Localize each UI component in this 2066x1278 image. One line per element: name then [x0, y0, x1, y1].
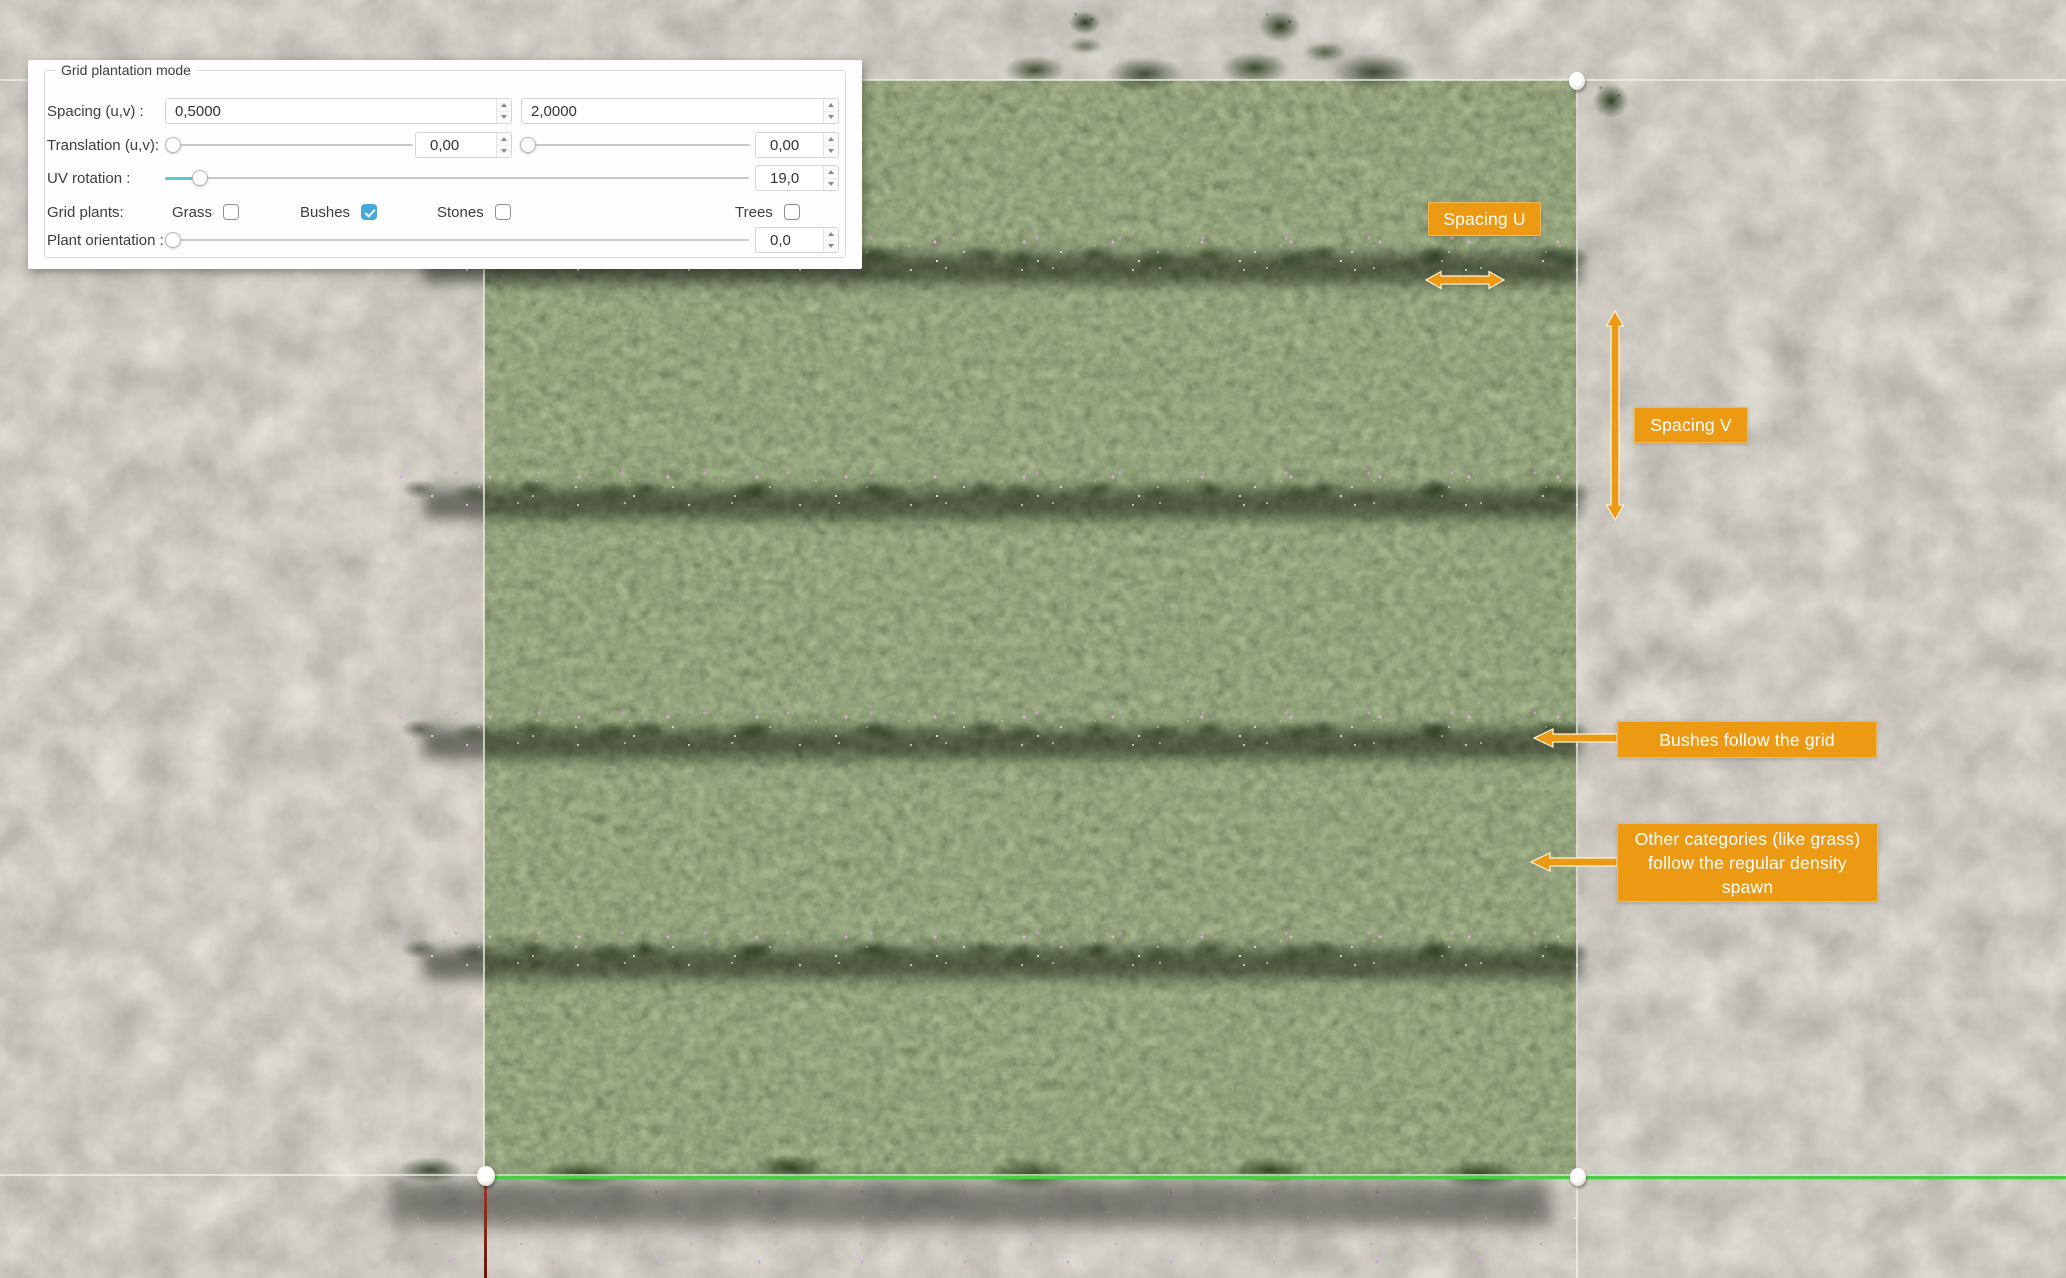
grid-plants-label: Grid plants: — [47, 199, 124, 225]
spinner-up-icon[interactable] — [824, 228, 838, 241]
selection-handle-bottom-right[interactable] — [1570, 1168, 1586, 1186]
spacing-u-group — [165, 98, 512, 124]
spinner-down-icon[interactable] — [824, 241, 838, 253]
bush-row — [389, 703, 1592, 757]
annotation-text: Spacing U — [1443, 207, 1526, 231]
spacing-u-spinner — [496, 99, 511, 123]
translation-u-slider[interactable] — [165, 132, 413, 158]
spinner-up-icon[interactable] — [497, 133, 511, 146]
grid-plant-option-trees: Trees — [735, 199, 800, 225]
spacing-v-arrow-icon — [1603, 309, 1627, 522]
grid-plant-option-bushes: Bushes — [300, 199, 377, 225]
axis-green-u — [486, 1176, 2066, 1179]
annotation-text: Other categories (like grass) follow the… — [1628, 827, 1867, 899]
plant-orientation-value[interactable] — [756, 228, 823, 252]
translation-label: Translation (u,v): — [47, 132, 159, 158]
translation-v-spinner — [823, 133, 838, 157]
bushes-label: Bushes — [300, 204, 350, 221]
axis-red-v — [484, 1178, 487, 1278]
translation-v-value-group — [755, 132, 839, 158]
selection-handle-top-right[interactable] — [1569, 72, 1585, 90]
slider-thumb[interactable] — [165, 137, 181, 153]
spinner-down-icon[interactable] — [824, 179, 838, 191]
bushes-arrow-icon — [1532, 727, 1618, 749]
bush-row — [389, 463, 1592, 517]
translation-u-value[interactable] — [416, 133, 496, 157]
uv-rotation-slider[interactable] — [165, 165, 749, 191]
stones-checkbox[interactable] — [495, 204, 511, 220]
slider-track[interactable] — [520, 144, 750, 146]
translation-u-spinner — [496, 133, 511, 157]
slider-track[interactable] — [165, 177, 749, 179]
grass-checkbox[interactable] — [223, 204, 239, 220]
grid-plant-option-grass: Grass — [172, 199, 239, 225]
uv-rotation-value[interactable] — [756, 166, 823, 190]
annotation-text: Bushes follow the grid — [1659, 728, 1835, 752]
uv-rotation-label: UV rotation : — [47, 165, 130, 191]
plant-orientation-spinner — [823, 228, 838, 252]
spinner-down-icon[interactable] — [824, 112, 838, 124]
annotation-spacing-u: Spacing U — [1428, 202, 1541, 236]
slider-thumb[interactable] — [165, 232, 181, 248]
slider-track[interactable] — [165, 144, 413, 146]
panel-legend: Grid plantation mode — [55, 62, 197, 78]
grass-label: Grass — [172, 204, 212, 221]
spinner-up-icon[interactable] — [824, 166, 838, 179]
weed-tuft — [1062, 4, 1108, 38]
spacing-v-group — [521, 98, 839, 124]
slider-track[interactable] — [165, 239, 749, 241]
spacing-row: Spacing (u,v) : — [28, 98, 862, 124]
spacing-label: Spacing (u,v) : — [47, 98, 144, 124]
plant-orientation-slider[interactable] — [165, 227, 749, 253]
plant-orientation-label: Plant orientation : — [47, 227, 164, 253]
trees-checkbox[interactable] — [784, 204, 800, 220]
uv-rotation-row: UV rotation : — [28, 165, 862, 191]
grid-plants-row: Grid plants: Grass Bushes Stones Trees — [28, 199, 862, 225]
grid-plant-option-stones: Stones — [437, 199, 511, 225]
selection-handle-origin[interactable] — [477, 1166, 495, 1186]
plant-orientation-row: Plant orientation : — [28, 227, 862, 253]
slider-thumb[interactable] — [520, 137, 536, 153]
uv-rotation-value-group — [755, 165, 839, 191]
spinner-down-icon[interactable] — [497, 112, 511, 124]
annotation-text: Spacing V — [1650, 413, 1732, 437]
weed-tuft — [1248, 0, 1312, 48]
bushes-checkbox[interactable] — [361, 204, 377, 220]
translation-u-value-group — [415, 132, 512, 158]
bottom-edge-bushes — [370, 1148, 1580, 1264]
spacing-v-spinner — [823, 99, 838, 123]
spinner-up-icon[interactable] — [824, 133, 838, 146]
trees-label: Trees — [735, 204, 773, 221]
uv-rotation-spinner — [823, 166, 838, 190]
spinner-up-icon[interactable] — [497, 99, 511, 112]
top-edge-bushes — [995, 34, 1475, 90]
spinner-up-icon[interactable] — [824, 99, 838, 112]
annotation-bushes-follow: Bushes follow the grid — [1617, 721, 1877, 758]
stones-label: Stones — [437, 204, 484, 221]
selection-line-right — [1576, 80, 1578, 1278]
translation-v-slider[interactable] — [520, 132, 750, 158]
spinner-down-icon[interactable] — [824, 146, 838, 158]
plant-orientation-value-group — [755, 227, 839, 253]
other-categories-arrow-icon — [1529, 851, 1618, 873]
annotation-spacing-v: Spacing V — [1634, 407, 1748, 443]
spacing-u-input[interactable] — [166, 99, 496, 123]
translation-row: Translation (u,v): — [28, 132, 862, 158]
spinner-down-icon[interactable] — [497, 146, 511, 158]
spacing-v-input[interactable] — [522, 99, 823, 123]
bush-row — [389, 923, 1592, 977]
grid-plantation-panel: Grid plantation mode Spacing (u,v) : Tra… — [28, 60, 862, 269]
slider-thumb[interactable] — [192, 170, 208, 186]
translation-v-value[interactable] — [756, 133, 823, 157]
spacing-u-arrow-icon — [1424, 268, 1506, 292]
annotation-other-categories: Other categories (like grass) follow the… — [1617, 823, 1878, 902]
